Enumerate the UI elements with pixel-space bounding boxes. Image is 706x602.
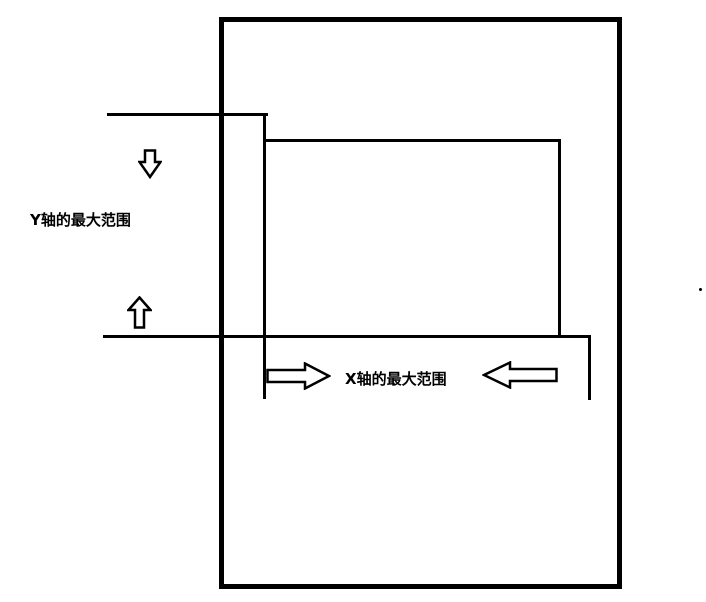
right-block-arrow-icon xyxy=(266,362,331,390)
x-axis-range-label: X轴的最大范围 xyxy=(345,371,447,388)
stray-dot xyxy=(699,288,702,291)
inner-rect-left-line xyxy=(263,113,266,399)
outer-boundary-rectangle xyxy=(219,17,622,589)
inner-rect-right-line xyxy=(558,139,561,338)
y-range-top-guide-line xyxy=(107,113,268,116)
down-block-arrow-icon xyxy=(138,149,162,179)
paint-drawing-canvas: Y轴的最大范围 X轴的最大范围 xyxy=(0,0,706,602)
left-block-arrow-icon xyxy=(482,361,558,389)
y-range-bottom-guide-line xyxy=(103,335,591,338)
inner-rect-top-line xyxy=(263,139,561,142)
x-range-right-tick-line xyxy=(588,335,591,400)
up-block-arrow-icon xyxy=(127,296,152,329)
y-axis-range-label: Y轴的最大范围 xyxy=(30,212,131,229)
